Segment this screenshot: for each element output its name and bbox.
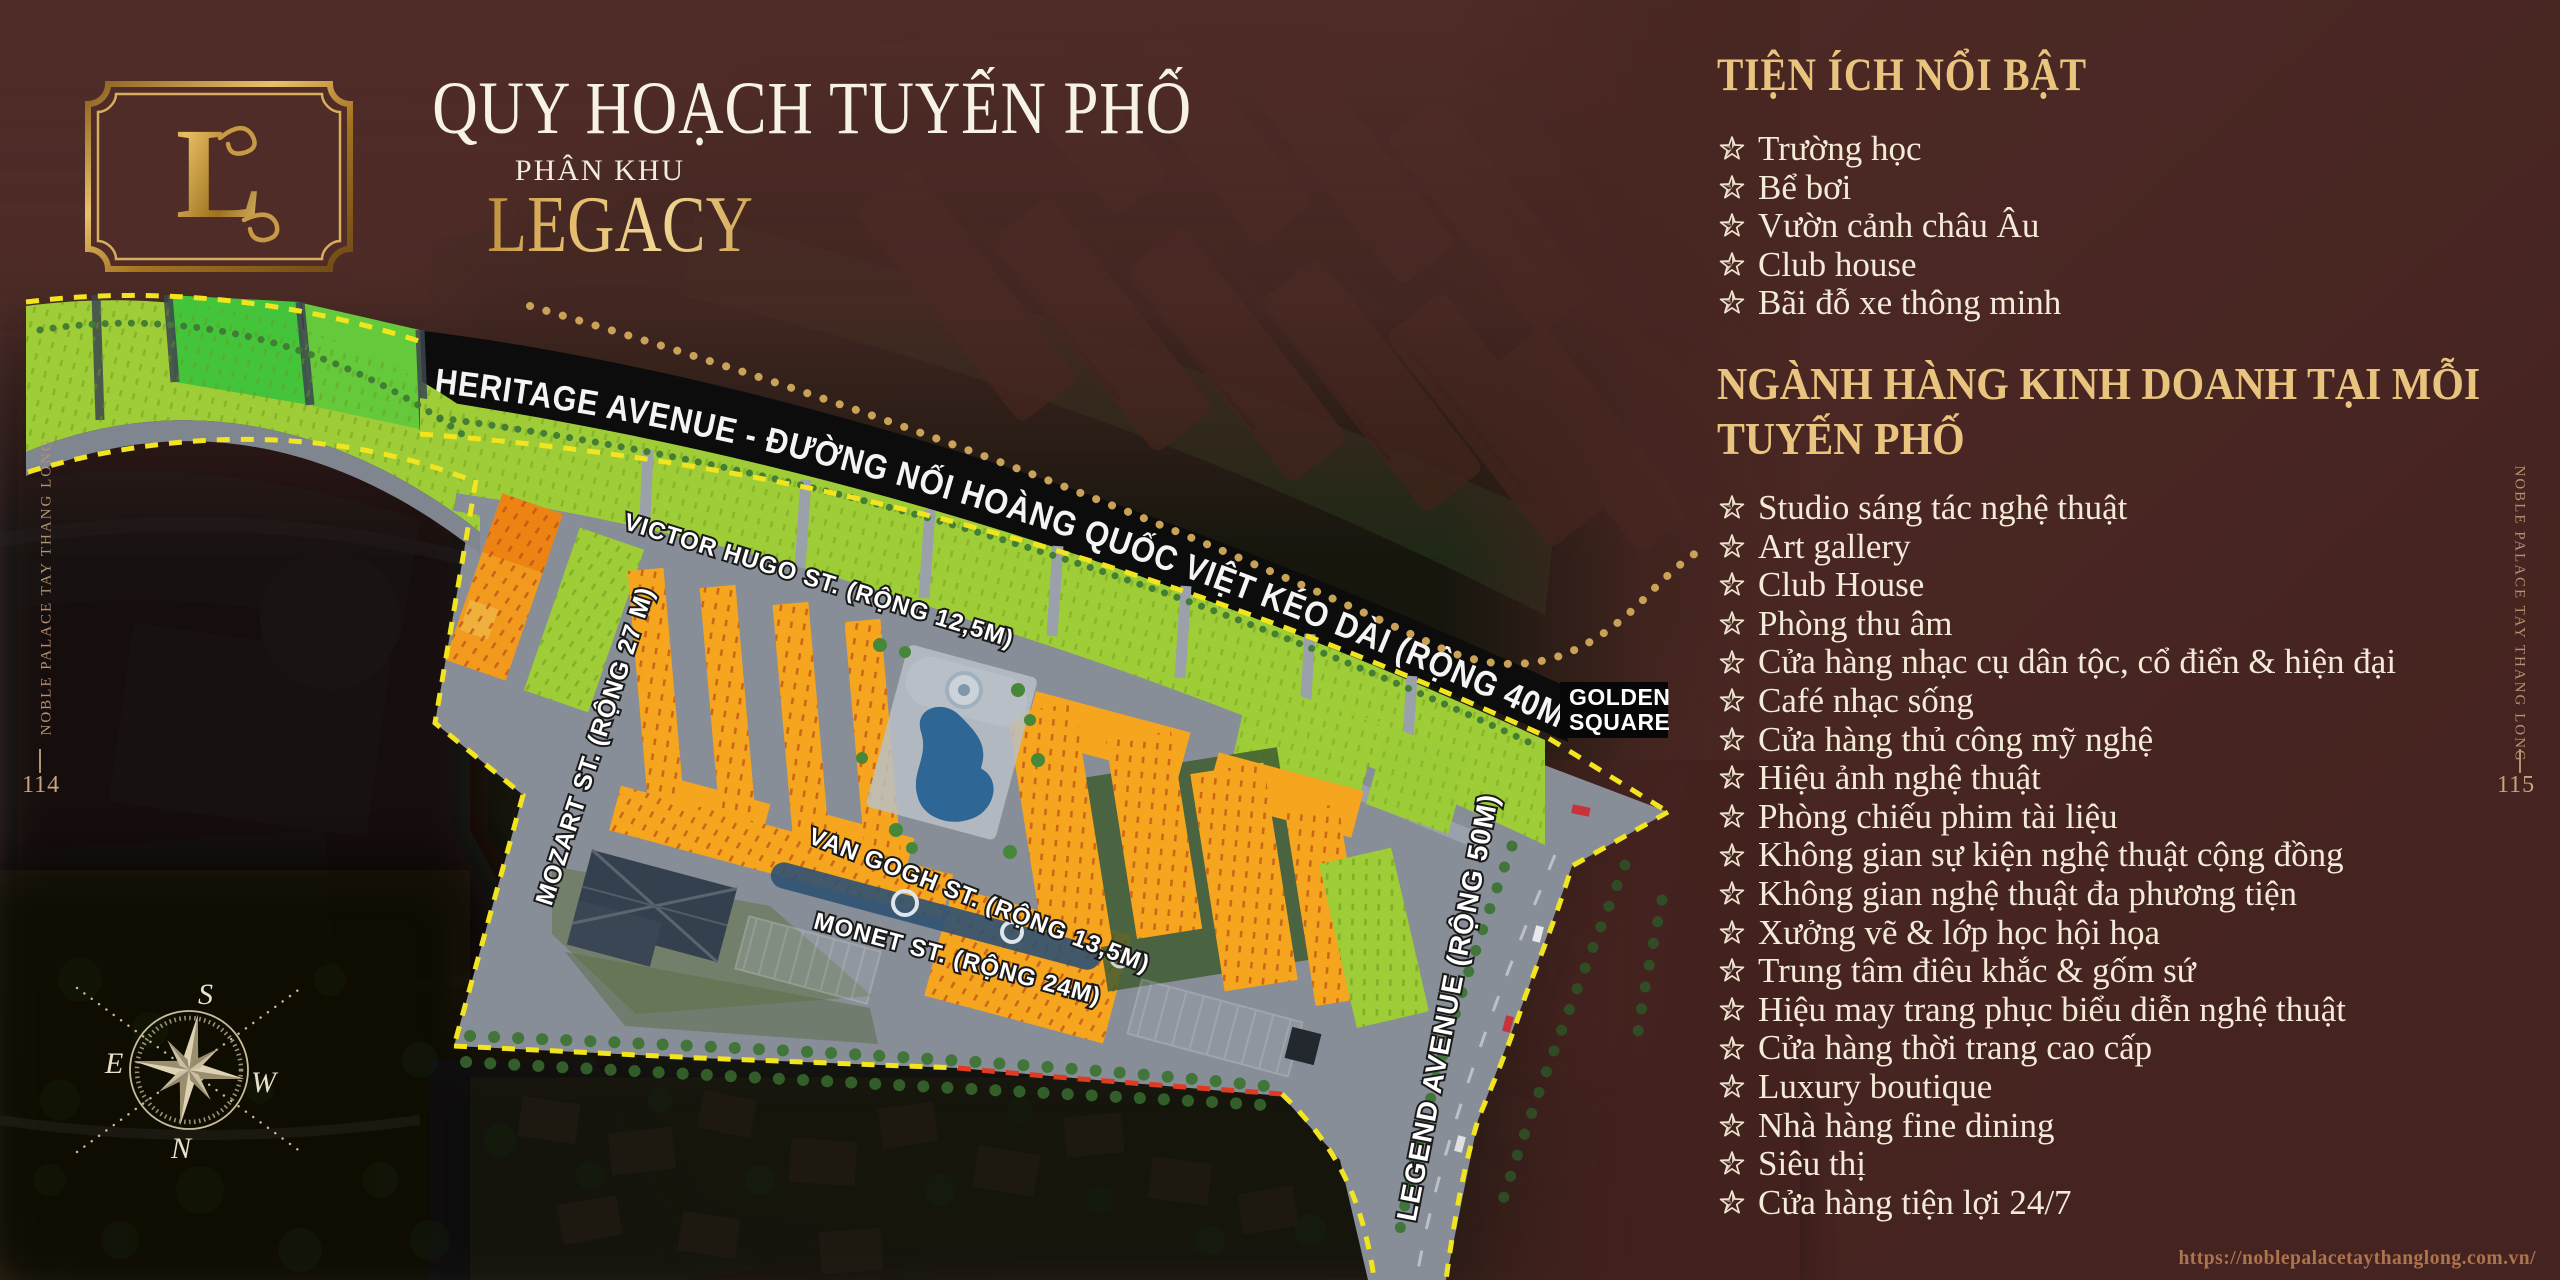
svg-text:S: S xyxy=(198,978,213,1011)
svg-text:W: W xyxy=(251,1066,279,1099)
svg-text:N: N xyxy=(170,1132,193,1165)
svg-text:E: E xyxy=(104,1047,123,1080)
svg-text:SQUARE: SQUARE xyxy=(1569,709,1670,735)
svg-text:GOLDEN: GOLDEN xyxy=(1569,684,1670,710)
